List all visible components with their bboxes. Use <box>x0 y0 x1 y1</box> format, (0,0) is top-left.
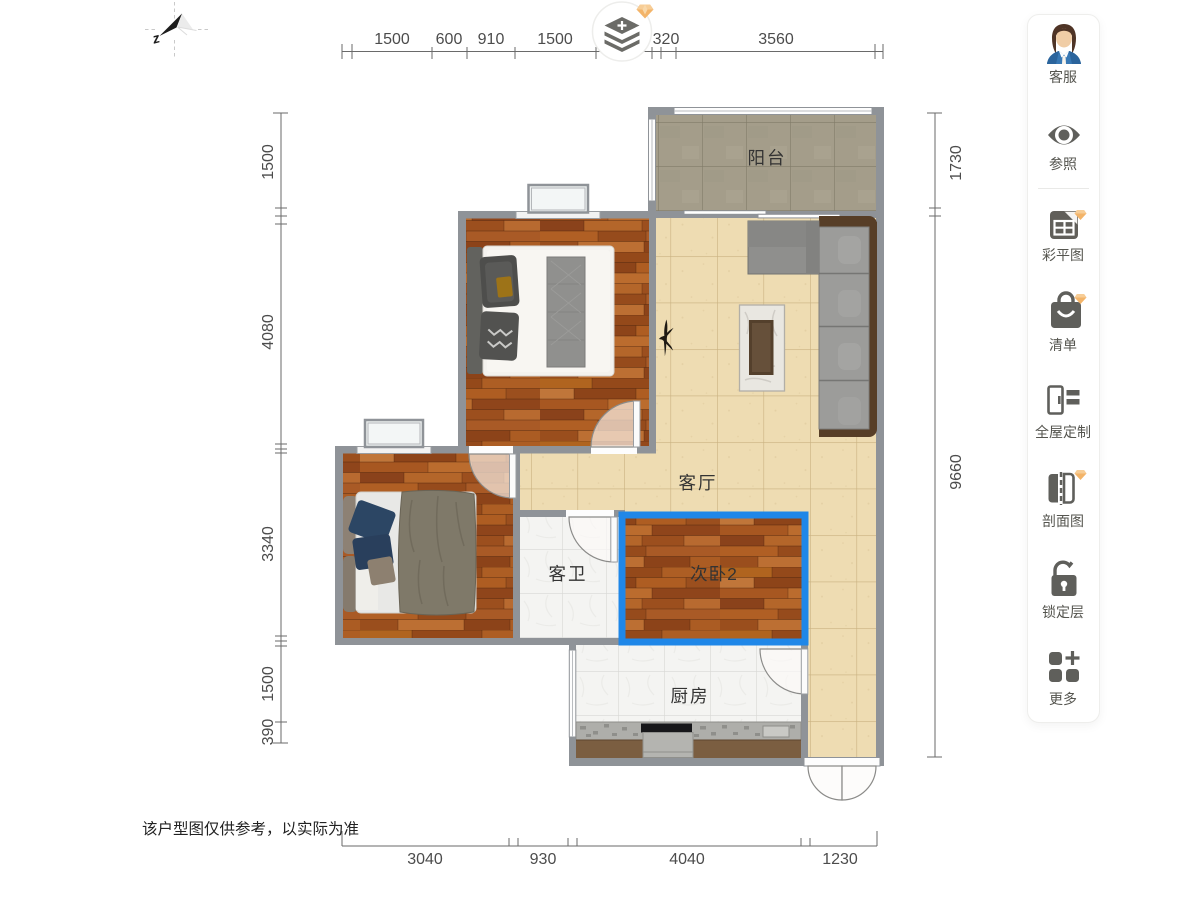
svg-text:1500: 1500 <box>260 144 277 180</box>
svg-text:1500: 1500 <box>260 666 277 702</box>
svg-text:厨房: 厨房 <box>671 686 710 706</box>
svg-text:1500: 1500 <box>374 31 410 48</box>
svg-text:3560: 3560 <box>758 31 794 48</box>
svg-text:阳台: 阳台 <box>748 148 787 168</box>
svg-text:1500: 1500 <box>537 31 573 48</box>
svg-text:9660: 9660 <box>948 454 965 490</box>
svg-text:1230: 1230 <box>822 851 858 868</box>
svg-text:客厅: 客厅 <box>679 473 718 493</box>
svg-text:1730: 1730 <box>948 145 965 181</box>
svg-text:930: 930 <box>530 851 557 868</box>
svg-text:客卫: 客卫 <box>549 564 588 584</box>
svg-text:次卧2: 次卧2 <box>690 564 738 584</box>
svg-text:600: 600 <box>436 31 463 48</box>
svg-text:4040: 4040 <box>669 851 705 868</box>
svg-text:z: z <box>150 29 162 47</box>
svg-text:4080: 4080 <box>260 314 277 350</box>
svg-text:320: 320 <box>653 31 680 48</box>
svg-text:3040: 3040 <box>407 851 443 868</box>
svg-text:3340: 3340 <box>260 526 277 562</box>
svg-text:910: 910 <box>478 31 505 48</box>
svg-text:该户型图仅供参考，以实际为准: 该户型图仅供参考，以实际为准 <box>142 820 359 838</box>
svg-text:390: 390 <box>260 719 277 746</box>
